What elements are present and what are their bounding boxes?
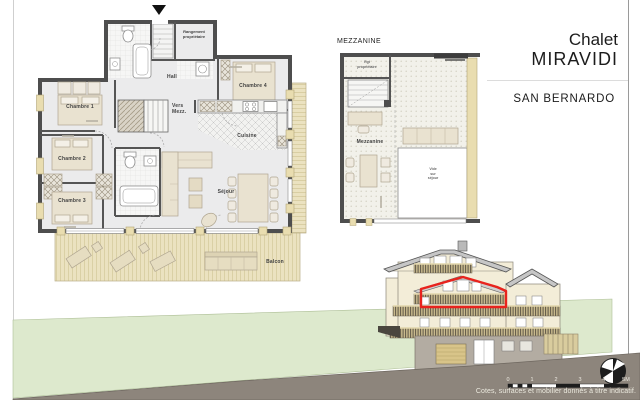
project-title: Chalet MIRAVIDI [470, 30, 618, 69]
room-label-chambre4: Chambre 4 [239, 83, 267, 89]
entrance-arrow-icon [152, 5, 166, 15]
area-label [380, 196, 382, 208]
drawing-sheet: Chalet MIRAVIDI SAN BERNARDO Chambre 1 C… [0, 0, 640, 400]
room-label-mezzanine: Mezzanine [357, 139, 384, 145]
room-label-hall: Hall [167, 74, 177, 80]
room-label-cuisine: Cuisine [237, 133, 256, 139]
scale-label-3: 3 [578, 377, 581, 383]
area-label [64, 226, 76, 228]
project-title-line2: MIRAVIDI [470, 49, 618, 69]
rgt-line2: propriétaire [357, 65, 376, 70]
room-label-chambre3: Chambre 3 [58, 198, 86, 204]
stairs-to-mezzanine [118, 100, 168, 132]
mezzanine-plan-title: MEZZANINE [337, 38, 381, 45]
scale-label-0: 0 [506, 377, 509, 383]
void-over-living-room [398, 148, 467, 218]
room-label-vide-sur-sejour: Vide sur séjour [428, 167, 439, 181]
scale-bar [508, 384, 628, 388]
room-label-rangement: Rangement propriétaire [183, 29, 205, 39]
vide-line1: Vide [428, 167, 439, 172]
room-label-rgt-proprietaire: Rgt propriétaire [357, 60, 376, 69]
room-label-chambre2: Chambre 2 [58, 156, 86, 162]
room-label-balcon: Balcon [266, 259, 284, 265]
scale-label-2: 2 [554, 377, 557, 383]
disclaimer-caption: Cotes, surfaces et mobilier donnés à tit… [468, 388, 636, 395]
vers-mezz-line2: Mezz. [172, 109, 186, 115]
project-location: SAN BERNARDO [470, 93, 615, 105]
scale-label-5m: 5M [622, 377, 630, 383]
room-label-sejour: Séjour [218, 189, 235, 195]
area-label [62, 135, 74, 137]
scale-label-4: 4 [602, 377, 605, 383]
vide-line3: séjour [428, 176, 439, 181]
project-title-line1: Chalet [470, 30, 618, 49]
area-label [86, 120, 98, 122]
room-label-vers-mezz: Vers Mezz. [172, 103, 186, 116]
area-label [230, 66, 242, 68]
main-floor-plan [37, 5, 307, 281]
rangement-line2: propriétaire [183, 34, 205, 39]
scale-label-1: 1 [530, 377, 533, 383]
room-label-chambre1: Chambre 1 [66, 104, 94, 110]
